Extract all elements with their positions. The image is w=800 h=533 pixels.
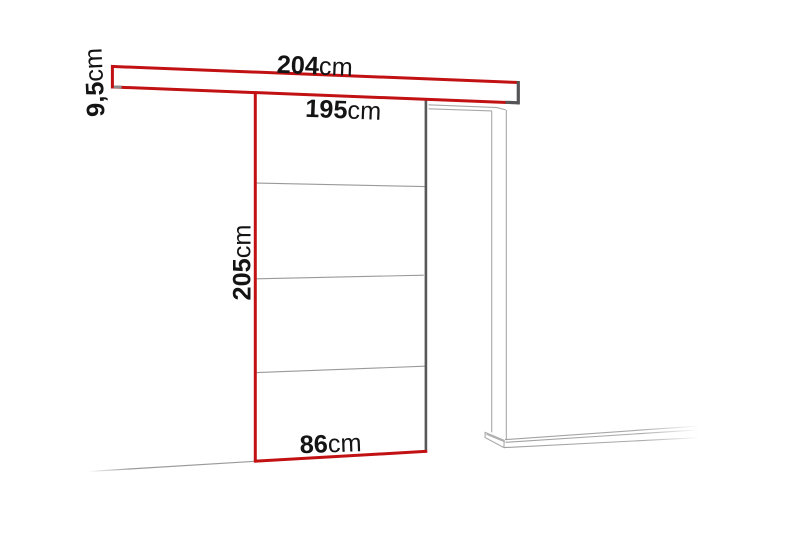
svg-text:204cm: 204cm <box>276 51 353 82</box>
svg-text:86cm: 86cm <box>299 429 362 459</box>
svg-text:9,5cm: 9,5cm <box>80 47 111 117</box>
svg-text:205cm: 205cm <box>229 225 257 301</box>
svg-text:195cm: 195cm <box>305 95 382 126</box>
